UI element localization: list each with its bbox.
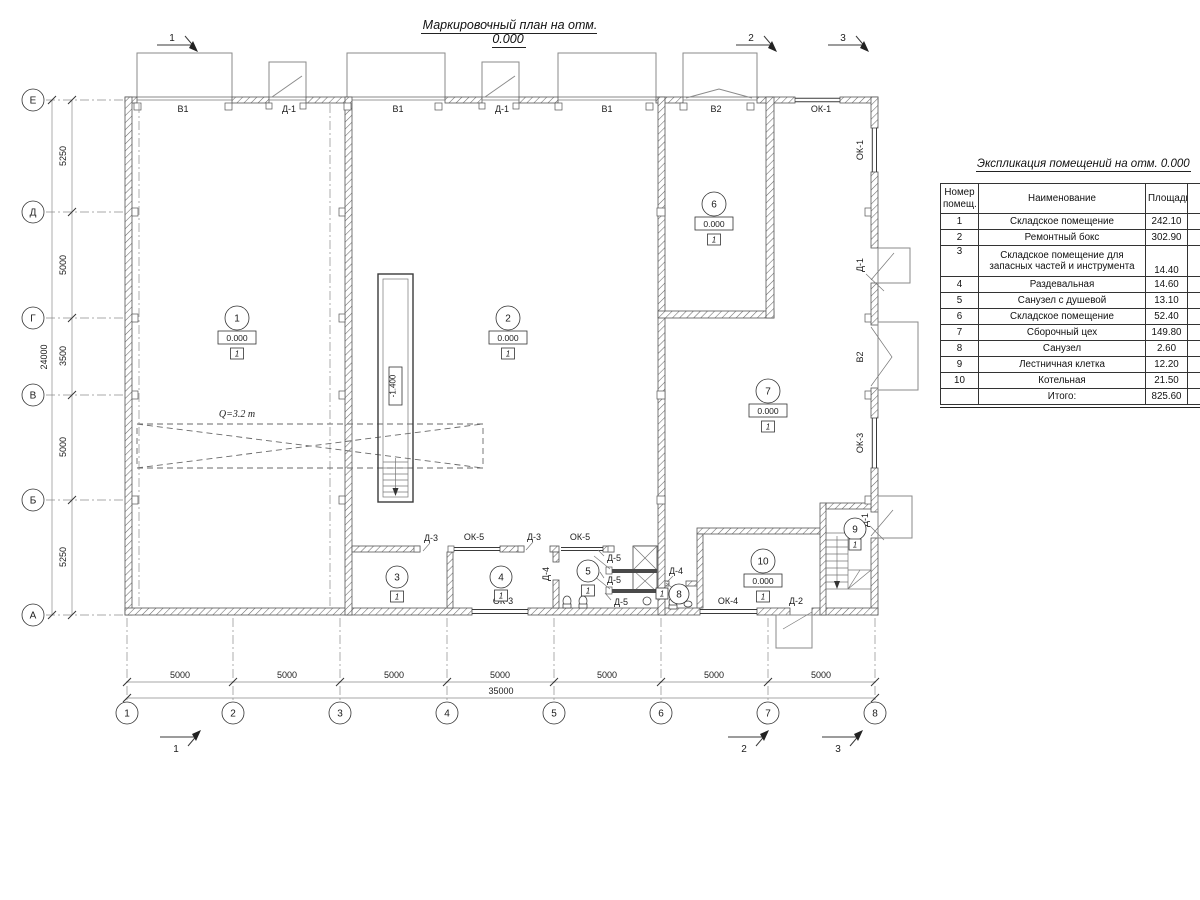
- dim-label: 5250: [58, 547, 68, 567]
- axis-col-label: 5: [551, 709, 557, 720]
- room-marker-2: 2 0.000 1: [489, 306, 527, 359]
- col-header-name: Наименование: [979, 184, 1146, 214]
- door-label: Д-5: [607, 575, 621, 585]
- window-label: ОК-5: [570, 532, 590, 542]
- cell-cut: [1188, 357, 1200, 373]
- room-marker-5: 5 1: [577, 560, 599, 596]
- table-row: 2 Ремонтный бокс 302.90: [941, 230, 1200, 246]
- window-label: ОК-4: [718, 596, 738, 606]
- cell-cut: [1188, 389, 1200, 405]
- cell-name: Раздевальная: [979, 277, 1146, 293]
- room-marker-10: 10 0.000 1: [744, 549, 782, 602]
- dim-total-label: 24000: [39, 344, 49, 369]
- table-row: 7 Сборочный цех 149.80: [941, 325, 1200, 341]
- total-value: 825.60: [1146, 389, 1188, 405]
- cell-name: Сборочный цех: [979, 325, 1146, 341]
- cell-cut: [1188, 325, 1200, 341]
- room-marker-6: 6 0.000 1: [695, 192, 733, 245]
- room-number: 1: [234, 314, 240, 325]
- cell-name: Складское помещение: [979, 214, 1146, 230]
- floor-type: 1: [761, 593, 765, 602]
- axis-col-label: 1: [124, 709, 130, 720]
- table-row: 5 Санузел с душевой 13.10: [941, 293, 1200, 309]
- axis-row-label: В: [30, 391, 37, 402]
- cell-cut: [1188, 293, 1200, 309]
- cell-cut: [1188, 341, 1200, 357]
- gate-label: В1: [177, 104, 188, 114]
- dim-label: 5000: [384, 670, 404, 680]
- door-label: Д-4: [669, 566, 683, 576]
- cell-area: 2.60: [1146, 341, 1188, 357]
- dim-label: 5000: [58, 437, 68, 457]
- room-marker-9: 9 1: [844, 518, 866, 550]
- room-marker-3: 3 1: [386, 566, 408, 602]
- door-label: Д-4: [541, 567, 551, 581]
- cell-cut: [1188, 246, 1200, 277]
- section-mark-label: 1: [169, 33, 175, 44]
- explication-title: Экспликация помещений на отм. 0.000: [976, 158, 1186, 170]
- col-header-area: Площадь: [1146, 184, 1188, 214]
- dim-label: 5000: [58, 255, 68, 275]
- door-label: Д-3: [424, 533, 438, 543]
- cell-num: 10: [941, 373, 979, 389]
- room-number: 6: [711, 200, 717, 211]
- door-label: Д-5: [614, 597, 628, 607]
- floor-type: 1: [586, 587, 590, 596]
- table-row: 6 Складское помещение 52.40: [941, 309, 1200, 325]
- axis-row-label: Д: [30, 208, 37, 219]
- crane-symbol: Q=3.2 т: [137, 104, 483, 607]
- room-marker-1: 1 0.000 1: [218, 306, 256, 359]
- room-number: 9: [852, 525, 858, 536]
- cell-name: Санузел: [979, 341, 1146, 357]
- drawing-title-text: Маркировочный план на отм. 0.000: [421, 18, 598, 48]
- dim-label: 5000: [811, 670, 831, 680]
- cell-num: 3: [941, 246, 979, 277]
- window-label: ОК-1: [811, 104, 831, 114]
- room-elevation: 0.000: [703, 219, 725, 229]
- axis-row-label: Б: [30, 496, 37, 507]
- cell-area: 302.90: [1146, 230, 1188, 246]
- dim-label: 5250: [58, 146, 68, 166]
- explication-title-text: Экспликация помещений на отм. 0.000: [976, 158, 1191, 172]
- axis-col-label: 2: [230, 709, 236, 720]
- total-label: Итого:: [979, 389, 1146, 405]
- exterior-walls: [125, 97, 918, 648]
- room-elevation: 0.000: [497, 333, 519, 343]
- cell-area: 14.60: [1146, 277, 1188, 293]
- cell-num: 4: [941, 277, 979, 293]
- door-label: Д-1: [282, 104, 296, 114]
- room-elevation: 0.000: [752, 576, 774, 586]
- cell-num: 2: [941, 230, 979, 246]
- room-marker-7: 7 0.000 1: [749, 379, 787, 432]
- floor-type: 1: [660, 590, 664, 599]
- explication-table: Номер помещ. Наименование Площадь Ка по …: [940, 183, 1200, 405]
- inspection-pit: -1.400: [378, 274, 413, 502]
- cell-area: 14.40: [1146, 246, 1188, 277]
- axis-col-label: 8: [872, 709, 878, 720]
- cell-num: 9: [941, 357, 979, 373]
- table-total-row: Итого: 825.60: [941, 389, 1200, 405]
- cell-num: 8: [941, 341, 979, 357]
- gate-label: В1: [601, 104, 612, 114]
- dim-label: 5000: [490, 670, 510, 680]
- gate-label: В1: [392, 104, 403, 114]
- crane-capacity-label: Q=3.2 т: [219, 409, 255, 420]
- cell-name: Складское помещение: [979, 309, 1146, 325]
- floor-type: 1: [235, 350, 239, 359]
- table-row: 3 Складское помещение для запасных часте…: [941, 246, 1200, 277]
- window-label: ОК-5: [464, 532, 484, 542]
- dim-label: 5000: [277, 670, 297, 680]
- axis-row-label: Г: [30, 314, 36, 325]
- axis-col-label: 3: [337, 709, 343, 720]
- room-number: 8: [676, 590, 682, 601]
- axis-row-label: А: [30, 611, 37, 622]
- table-row: 10 Котельная 21.50: [941, 373, 1200, 389]
- window-label: ОК-3: [855, 433, 865, 453]
- dim-total-label: 35000: [488, 686, 513, 696]
- dim-label: 5000: [597, 670, 617, 680]
- floor-type: 1: [506, 350, 510, 359]
- cell-num: 1: [941, 214, 979, 230]
- grid-left: 5250 5000 3500 5000 5250 24000 Е Д Г В Б…: [22, 89, 123, 626]
- section-mark-label: 3: [835, 744, 841, 755]
- room-number: 10: [757, 557, 769, 568]
- gate-label: В2: [855, 351, 865, 362]
- cell-cut: [1188, 309, 1200, 325]
- table-row: 4 Раздевальная 14.60: [941, 277, 1200, 293]
- staircase: [826, 533, 871, 589]
- cell-cut: [1188, 277, 1200, 293]
- cell-area: 242.10: [1146, 214, 1188, 230]
- section-marks-bottom: 1 2 3: [160, 730, 863, 755]
- room-number: 4: [498, 573, 504, 584]
- cell-num: 7: [941, 325, 979, 341]
- col-header-cut: Ка по: [1188, 184, 1200, 214]
- room-number: 7: [765, 387, 771, 398]
- table-header-row: Номер помещ. Наименование Площадь Ка по: [941, 184, 1200, 214]
- section-mark-label: 2: [741, 744, 747, 755]
- gate-leaves: [137, 53, 757, 98]
- door-label: Д-1: [855, 258, 865, 272]
- room-elevation: 0.000: [226, 333, 248, 343]
- section-mark-label: 2: [748, 33, 754, 44]
- floor-plan-svg: 1 2 3: [0, 0, 1200, 900]
- room-number: 5: [585, 567, 591, 578]
- pit-depth-label: -1.400: [389, 374, 398, 397]
- cell-area: 12.20: [1146, 357, 1188, 373]
- dim-label: 3500: [58, 346, 68, 366]
- axis-row-label: Е: [30, 96, 37, 107]
- axis-col-label: 4: [444, 709, 450, 720]
- floor-type: 1: [853, 541, 857, 550]
- cell-name: Лестничная клетка: [979, 357, 1146, 373]
- door-label: Д-1: [495, 104, 509, 114]
- floor-type: 1: [499, 592, 503, 601]
- cell-cut: [1188, 373, 1200, 389]
- room-elevation: 0.000: [757, 406, 779, 416]
- door-label: Д-5: [607, 553, 621, 563]
- cell-area: 13.10: [1146, 293, 1188, 309]
- window-label: ОК-1: [855, 140, 865, 160]
- grid-bottom: 5000 5000 5000 5000 5000 5000 5000 35000…: [116, 618, 886, 724]
- cell-area: 21.50: [1146, 373, 1188, 389]
- section-mark-label: 1: [173, 744, 179, 755]
- cell-name: Ремонтный бокс: [979, 230, 1146, 246]
- gate-label: В2: [710, 104, 721, 114]
- cell-num: 6: [941, 309, 979, 325]
- floor-type: 1: [766, 423, 770, 432]
- table-row: 9 Лестничная клетка 12.20: [941, 357, 1200, 373]
- door-label: Д-2: [789, 596, 803, 606]
- cell-num: 5: [941, 293, 979, 309]
- door-label: Д-3: [527, 532, 541, 542]
- axis-col-label: 7: [765, 709, 771, 720]
- table-outer-border-line: [940, 407, 1200, 408]
- table-row: 8 Санузел 2.60: [941, 341, 1200, 357]
- axis-col-label: 6: [658, 709, 664, 720]
- drawing-title: Маркировочный план на отм. 0.000: [403, 18, 615, 46]
- cell-name: Складское помещение для запасных частей …: [979, 246, 1146, 277]
- table-row: 1 Складское помещение 242.10: [941, 214, 1200, 230]
- cell-name: Котельная: [979, 373, 1146, 389]
- col-header-number: Номер помещ.: [941, 184, 979, 214]
- floor-type: 1: [712, 236, 716, 245]
- room-number: 2: [505, 314, 511, 325]
- room-number: 3: [394, 573, 400, 584]
- section-mark-label: 3: [840, 33, 846, 44]
- floor-type: 1: [395, 593, 399, 602]
- cell-cut: [1188, 214, 1200, 230]
- cell-num: [941, 389, 979, 405]
- dim-label: 5000: [704, 670, 724, 680]
- cell-area: 149.80: [1146, 325, 1188, 341]
- drawing-sheet: 1 2 3: [0, 0, 1200, 900]
- cell-cut: [1188, 230, 1200, 246]
- cell-name: Санузел с душевой: [979, 293, 1146, 309]
- cell-area: 52.40: [1146, 309, 1188, 325]
- dim-label: 5000: [170, 670, 190, 680]
